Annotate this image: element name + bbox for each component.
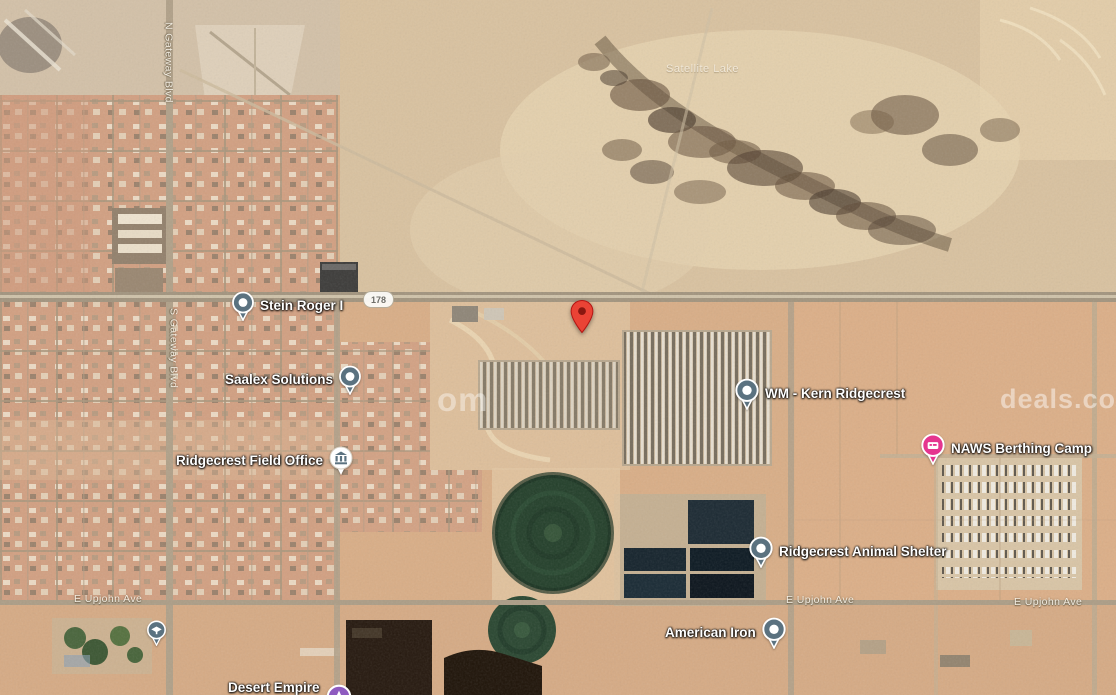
generic-place-pin-icon [231,291,255,321]
poi-label[interactable]: Ridgecrest Field Office [176,453,323,469]
poi-american-iron[interactable]: American Iron [665,617,787,649]
poi-label[interactable]: Ridgecrest Animal Shelter [779,544,947,560]
destination-pin[interactable] [569,299,595,339]
street-label-e-upjohn-ave-east: E Upjohn Ave [1014,597,1082,608]
poi-label-line1[interactable]: Desert Empire [228,680,320,695]
poi-naws-berthing-camp[interactable]: NAWS Berthing Camp [920,433,1092,465]
poi-desert-empire-fairgrounds[interactable]: Desert Empire Fairgrounds [228,674,353,695]
poi-label[interactable]: NAWS Berthing Camp [951,441,1092,457]
street-label-e-upjohn-ave-mid: E Upjohn Ave [786,595,854,606]
poi-label[interactable]: Saalex Solutions [225,372,333,388]
area-label-satellite-lake: Satellite Lake [666,64,739,75]
generic-place-pin-icon [338,365,362,395]
lodging-pin-icon [920,433,946,465]
street-label-n-gateway-blvd: N Gateway Blvd [163,22,174,103]
poi-label-two-line[interactable]: Desert Empire Fairgrounds [228,680,320,695]
poi-wm-kern-ridgecrest[interactable]: WM - Kern Ridgecrest [734,378,905,410]
poi-saalex-solutions[interactable]: Saalex Solutions [225,365,362,395]
government-building-icon [328,446,354,476]
poi-ridgecrest-field-office[interactable]: Ridgecrest Field Office [176,446,354,476]
poi-stein-roger-i[interactable]: Stein Roger I [231,291,343,321]
poi-label[interactable]: WM - Kern Ridgecrest [765,386,905,402]
poi-label[interactable]: Stein Roger I [260,298,343,314]
highway-shield-178: 178 [363,291,394,308]
poi-label[interactable]: American Iron [665,625,756,641]
poi-ridgecrest-animal-shelter[interactable]: Ridgecrest Animal Shelter [748,536,947,568]
poi-school-unlabeled[interactable] [146,620,167,646]
generic-place-pin-icon [734,378,760,410]
map-canvas[interactable]: 178 N Gateway Blvd S Gateway Blvd E Upjo… [0,0,1116,695]
generic-place-pin-icon [761,617,787,649]
generic-place-pin-icon [748,536,774,568]
school-pin-icon [146,620,167,646]
street-label-e-upjohn-ave-west: E Upjohn Ave [74,594,142,605]
street-label-s-gateway-blvd: S Gateway Blvd [168,308,179,388]
red-map-pin-icon [569,299,595,334]
attraction-pin-icon [325,684,353,695]
